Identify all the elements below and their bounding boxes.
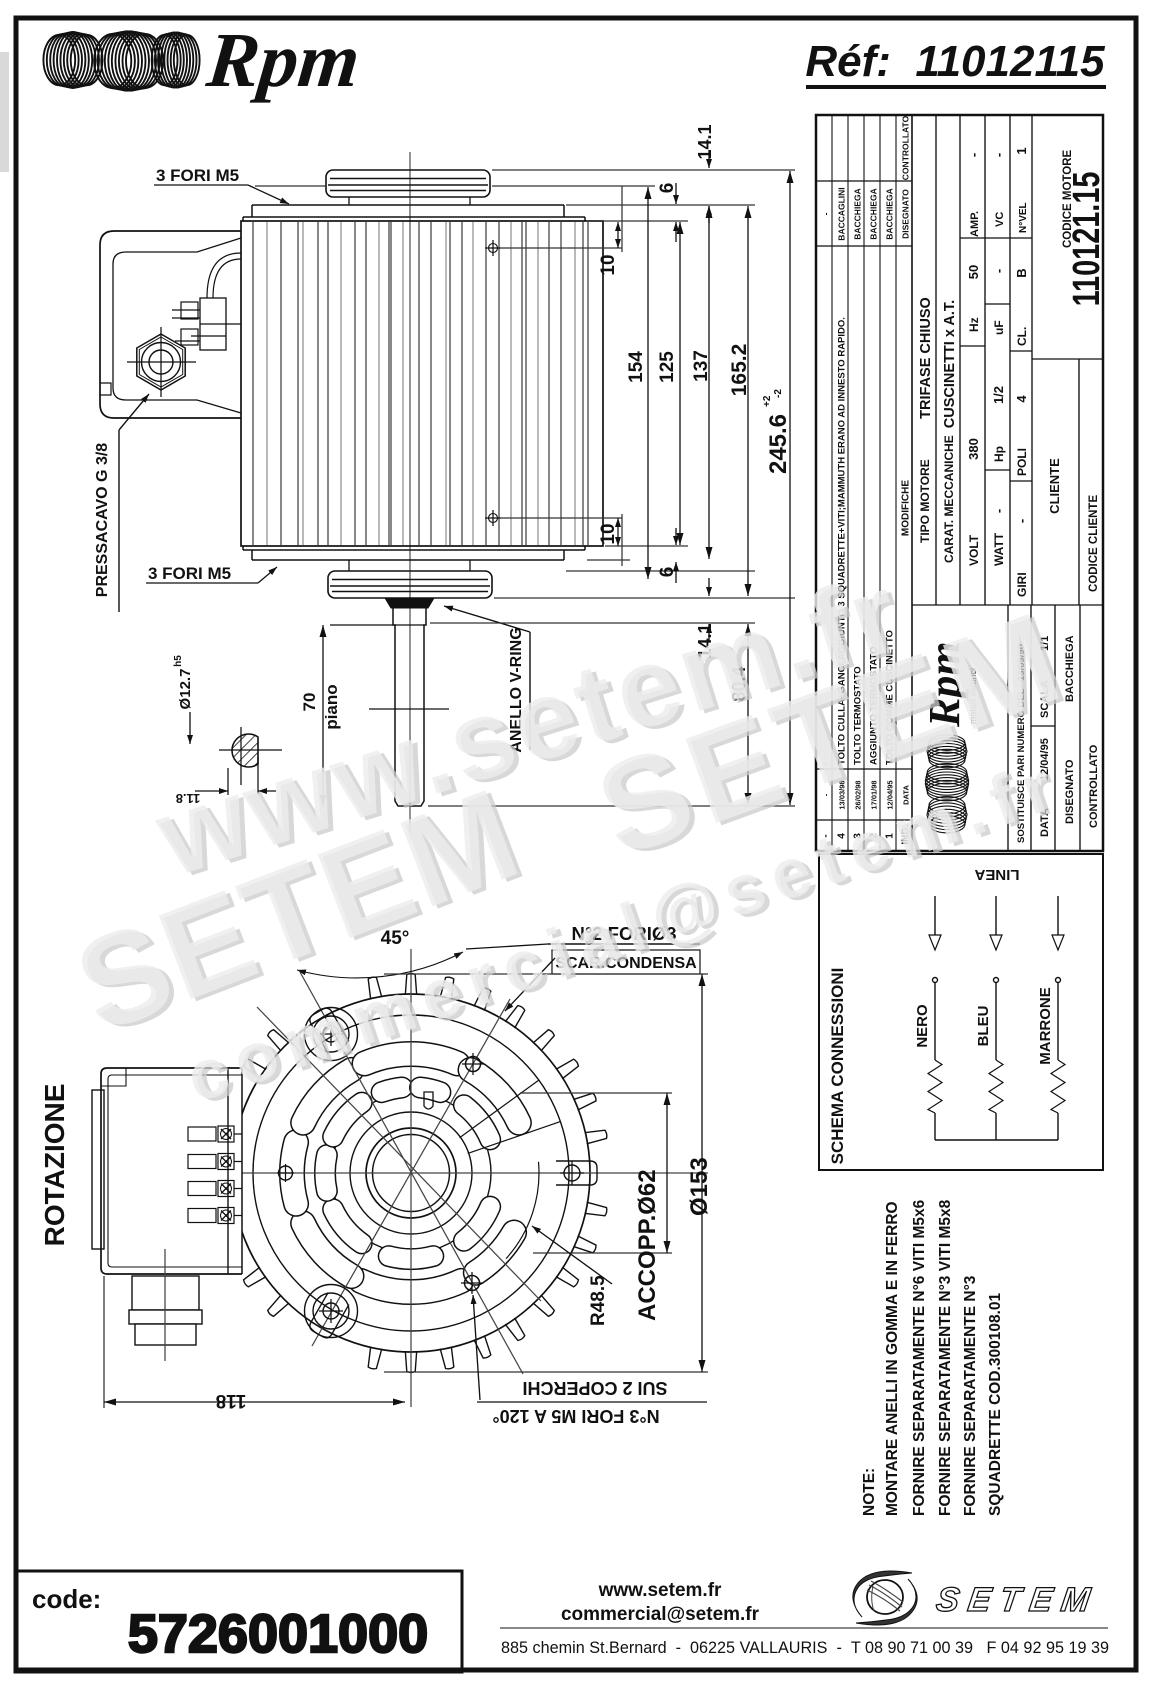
svg-text:SCALA: SCALA [1039,680,1051,718]
svg-text:-: - [966,153,981,157]
svg-text:MONTARE ANELLI IN GOMMA E IN F: MONTARE ANELLI IN GOMMA E IN FERRO [884,1201,901,1516]
svg-text:26/02/98: 26/02/98 [854,780,863,809]
svg-text:-: - [991,509,1006,513]
svg-text:14.1: 14.1 [695,124,715,159]
svg-text:FORNIRE SEPARATAMENTE N°3 VITI: FORNIRE SEPARATAMENTE N°3 VITI M5x8 [937,1199,954,1516]
svg-text:137: 137 [691,350,712,382]
svg-text:N°VEL: N°VEL [1018,202,1029,233]
svg-text:11.8: 11.8 [176,791,201,806]
svg-text:SETEM: SETEM [934,1581,1101,1619]
svg-text:NOTE:: NOTE: [861,1468,878,1516]
svg-text:h5: h5 [173,655,184,667]
svg-text:BACCHIEGA: BACCHIEGA [1064,635,1076,702]
svg-text:Hp: Hp [992,446,1006,462]
svg-text:TOLTO TERMOSTATO: TOLTO TERMOSTATO [853,666,864,765]
svg-text:BLEU: BLEU [975,1006,992,1047]
svg-text:ANELLO V-RING: ANELLO V-RING [508,627,525,752]
svg-text:245.6: 245.6 [765,414,792,474]
svg-text:380: 380 [966,438,981,460]
svg-text:TOLTO CULLA+GANCI,AGGIUNTO 3 S: TOLTO CULLA+GANCI,AGGIUNTO 3 SQUADRETTE+… [837,317,848,765]
svg-text:DISEGNATO: DISEGNATO [901,189,911,239]
svg-text:CARAT. MECCANICHE: CARAT. MECCANICHE [942,435,956,563]
svg-text:-: - [821,762,832,765]
svg-text:CLIENTE: CLIENTE [1047,458,1062,514]
svg-text:www.setem.fr: www.setem.fr [598,1580,722,1601]
svg-text:CONTROLLATO: CONTROLLATO [1088,744,1100,828]
svg-text:BACCHIEGA: BACCHIEGA [885,188,895,239]
svg-text:-: - [1014,519,1029,523]
svg-text:AGGIUNTO TERMOSTATO: AGGIUNTO TERMOSTATO [869,646,880,765]
svg-text:80.4: 80.4 [729,666,749,701]
svg-text:Réf: 11012115: Réf: 11012115 [805,37,1105,86]
svg-text:-2: -2 [773,389,784,398]
svg-text:ACCOPP.Ø62: ACCOPP.Ø62 [634,1169,661,1321]
svg-text:CONTROLLATO: CONTROLLATO [901,115,911,180]
svg-text:SUI 2 COPERCHI: SUI 2 COPERCHI [522,1378,667,1398]
svg-text:MARRONE: MARRONE [1037,987,1054,1065]
svg-text:-: - [991,153,1006,157]
svg-text:FORNIRE SEPARATAMENTE N°6 VITI: FORNIRE SEPARATAMENTE N°6 VITI M5x6 [911,1199,928,1516]
svg-text:N°2 FORIØ3: N°2 FORIØ3 [571,923,676,944]
svg-text:Hz: Hz [967,317,981,332]
svg-text:BACCHIEGA: BACCHIEGA [869,188,879,239]
svg-text:SOSTITUISCE PARI NUMERO DEL: SOSTITUISCE PARI NUMERO DEL [1016,688,1027,843]
svg-text:3: 3 [853,833,864,839]
svg-text:code:: code: [32,1584,101,1614]
svg-text:piano: piano [322,684,341,729]
svg-text:motori elettrici: motori elettrici [968,668,978,724]
svg-text:50: 50 [966,265,981,279]
svg-text:SCAR.CONDENSA: SCAR.CONDENSA [555,955,697,972]
svg-text:BACCAGLINI: BACCAGLINI [837,187,847,240]
svg-text:12/04/95: 12/04/95 [1039,738,1051,781]
svg-text:PRESSACAVO G 3/8: PRESSACAVO G 3/8 [94,443,111,598]
svg-text:TRIFASE CHIUSO: TRIFASE CHIUSO [918,297,934,419]
svg-text:-: - [821,834,832,837]
svg-text:Rpm: Rpm [920,641,969,728]
svg-text:2: 2 [869,833,880,839]
svg-text:4: 4 [1014,395,1029,403]
svg-text:VOLT: VOLT [967,534,981,566]
svg-text:ROTAZIONE: ROTAZIONE [39,1084,70,1247]
svg-text:POLI: POLI [1015,448,1029,476]
svg-text:4: 4 [837,833,848,839]
svg-text:Ø153: Ø153 [686,1157,713,1216]
svg-text:FORNIRE SEPARATAMENTE N°3: FORNIRE SEPARATAMENTE N°3 [962,1275,979,1516]
svg-text:3 FORI M5: 3 FORI M5 [156,166,239,185]
svg-text:125: 125 [657,351,678,383]
svg-text:R48.5: R48.5 [588,1275,609,1326]
svg-text:-: - [821,212,831,215]
svg-text:1/2: 1/2 [991,386,1006,404]
svg-text:1/1: 1/1 [1039,636,1051,651]
svg-text:NERO: NERO [914,1004,931,1048]
svg-text:DISEGNATO: DISEGNATO [1064,759,1076,824]
svg-text:CL.: CL. [1015,327,1029,346]
svg-text:17/01/98: 17/01/98 [870,780,879,809]
svg-text:110121.15: 110121.15 [1065,172,1108,307]
svg-text:CUSCINETTI x A.T.: CUSCINETTI x A.T. [942,300,958,428]
svg-text:N°3 FORI M5 A 120°: N°3 FORI M5 A 120° [492,1406,659,1426]
svg-text:154: 154 [626,351,647,383]
svg-text:GIRI: GIRI [1015,572,1029,597]
svg-text:10: 10 [598,523,619,544]
svg-text:uF: uF [992,320,1006,335]
svg-text:-: - [991,269,1006,273]
svg-text:6: 6 [657,567,678,578]
svg-text:12/04/95: 12/04/95 [886,780,895,809]
svg-text:B: B [1014,268,1029,277]
svg-text:CODICE CLIENTE: CODICE CLIENTE [1088,495,1100,592]
svg-text:1: 1 [1014,147,1029,154]
svg-text:14.1: 14.1 [695,623,715,658]
svg-text:SCHEMA CONNESSIONI: SCHEMA CONNESSIONI [828,968,847,1165]
svg-text:6: 6 [657,183,678,194]
svg-text:165.2: 165.2 [728,344,751,397]
svg-text:Ø12.7: Ø12.7 [177,669,194,710]
svg-text:LINEA: LINEA [974,866,1019,883]
svg-text:IND: IND [901,827,912,844]
svg-text:SQUADRETTE COD.300108.01: SQUADRETTE COD.300108.01 [987,1293,1004,1516]
svg-text:70: 70 [300,693,319,712]
svg-text:DATA: DATA [1039,808,1051,837]
svg-text:+2: +2 [762,395,773,407]
svg-text:VC: VC [994,212,1006,227]
svg-text:MODIFICHE: MODIFICHE [901,480,912,536]
svg-text:5726001000: 5726001000 [128,1604,428,1664]
svg-text:BACCHIEGA: BACCHIEGA [853,188,863,239]
svg-text:1: 1 [885,833,896,839]
svg-text:13/03/98: 13/03/98 [838,780,847,809]
svg-text:WATT: WATT [992,532,1006,566]
svg-text:45°: 45° [381,928,410,949]
svg-text:118: 118 [216,1390,247,1411]
svg-text:885 chemin St.Bernard - 0622: 885 chemin St.Bernard - 06225 VALLAURIS … [501,1639,1109,1657]
svg-text:TOLTO GOMME CUSCINETTO: TOLTO GOMME CUSCINETTO [885,630,896,765]
svg-text:10: 10 [598,254,619,275]
svg-text:Rpm: Rpm [202,16,364,103]
svg-text:DATA: DATA [902,785,911,805]
svg-text:AMP.: AMP. [969,211,981,237]
svg-text:13/09/90: 13/09/90 [1016,644,1027,681]
svg-text:commercial@setem.fr: commercial@setem.fr [561,1604,760,1625]
svg-text:3 FORI M5: 3 FORI M5 [148,564,231,583]
svg-text:TIPO MOTORE: TIPO MOTORE [918,459,932,543]
